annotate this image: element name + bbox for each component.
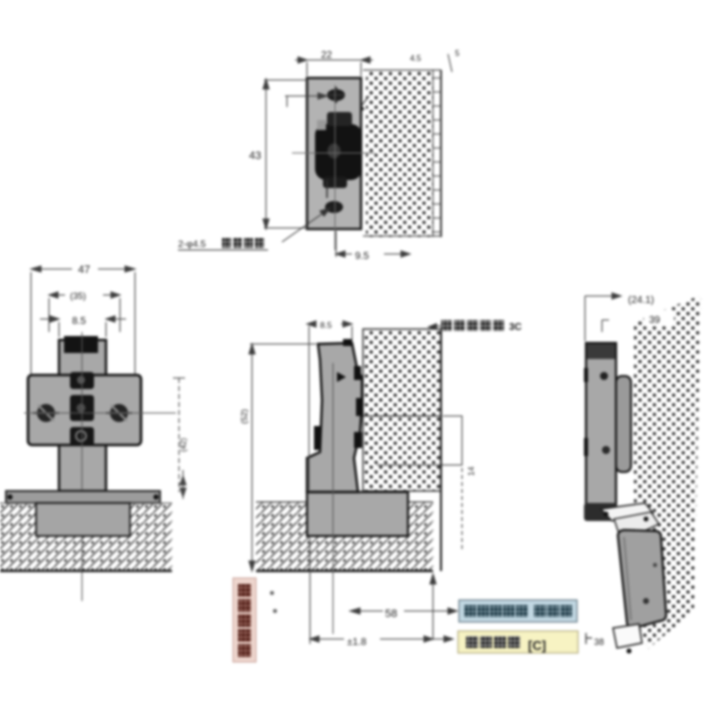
- svg-text:8.5: 8.5: [72, 316, 86, 327]
- svg-text:4.5: 4.5: [410, 54, 422, 63]
- svg-text:39: 39: [649, 315, 661, 326]
- svg-text:8.5: 8.5: [320, 320, 332, 330]
- svg-text:58: 58: [385, 608, 397, 620]
- svg-text:14: 14: [466, 466, 476, 476]
- svg-text:38: 38: [594, 637, 604, 647]
- svg-text:(52): (52): [239, 409, 249, 424]
- svg-text:47: 47: [78, 264, 90, 276]
- svg-text:43: 43: [249, 150, 261, 162]
- svg-text:5: 5: [455, 49, 460, 58]
- svg-text:(24.1): (24.1): [628, 295, 654, 306]
- svg-text:[C]: [C]: [528, 638, 546, 653]
- svg-text:9.5: 9.5: [355, 251, 369, 262]
- svg-text:2-φ4.5: 2-φ4.5: [178, 239, 206, 250]
- svg-text:(35): (35): [70, 291, 86, 301]
- svg-text:22: 22: [321, 50, 333, 61]
- svg-text:(42): (42): [179, 437, 188, 452]
- svg-text:±1.8: ±1.8: [347, 637, 367, 648]
- svg-text:3C: 3C: [509, 322, 522, 333]
